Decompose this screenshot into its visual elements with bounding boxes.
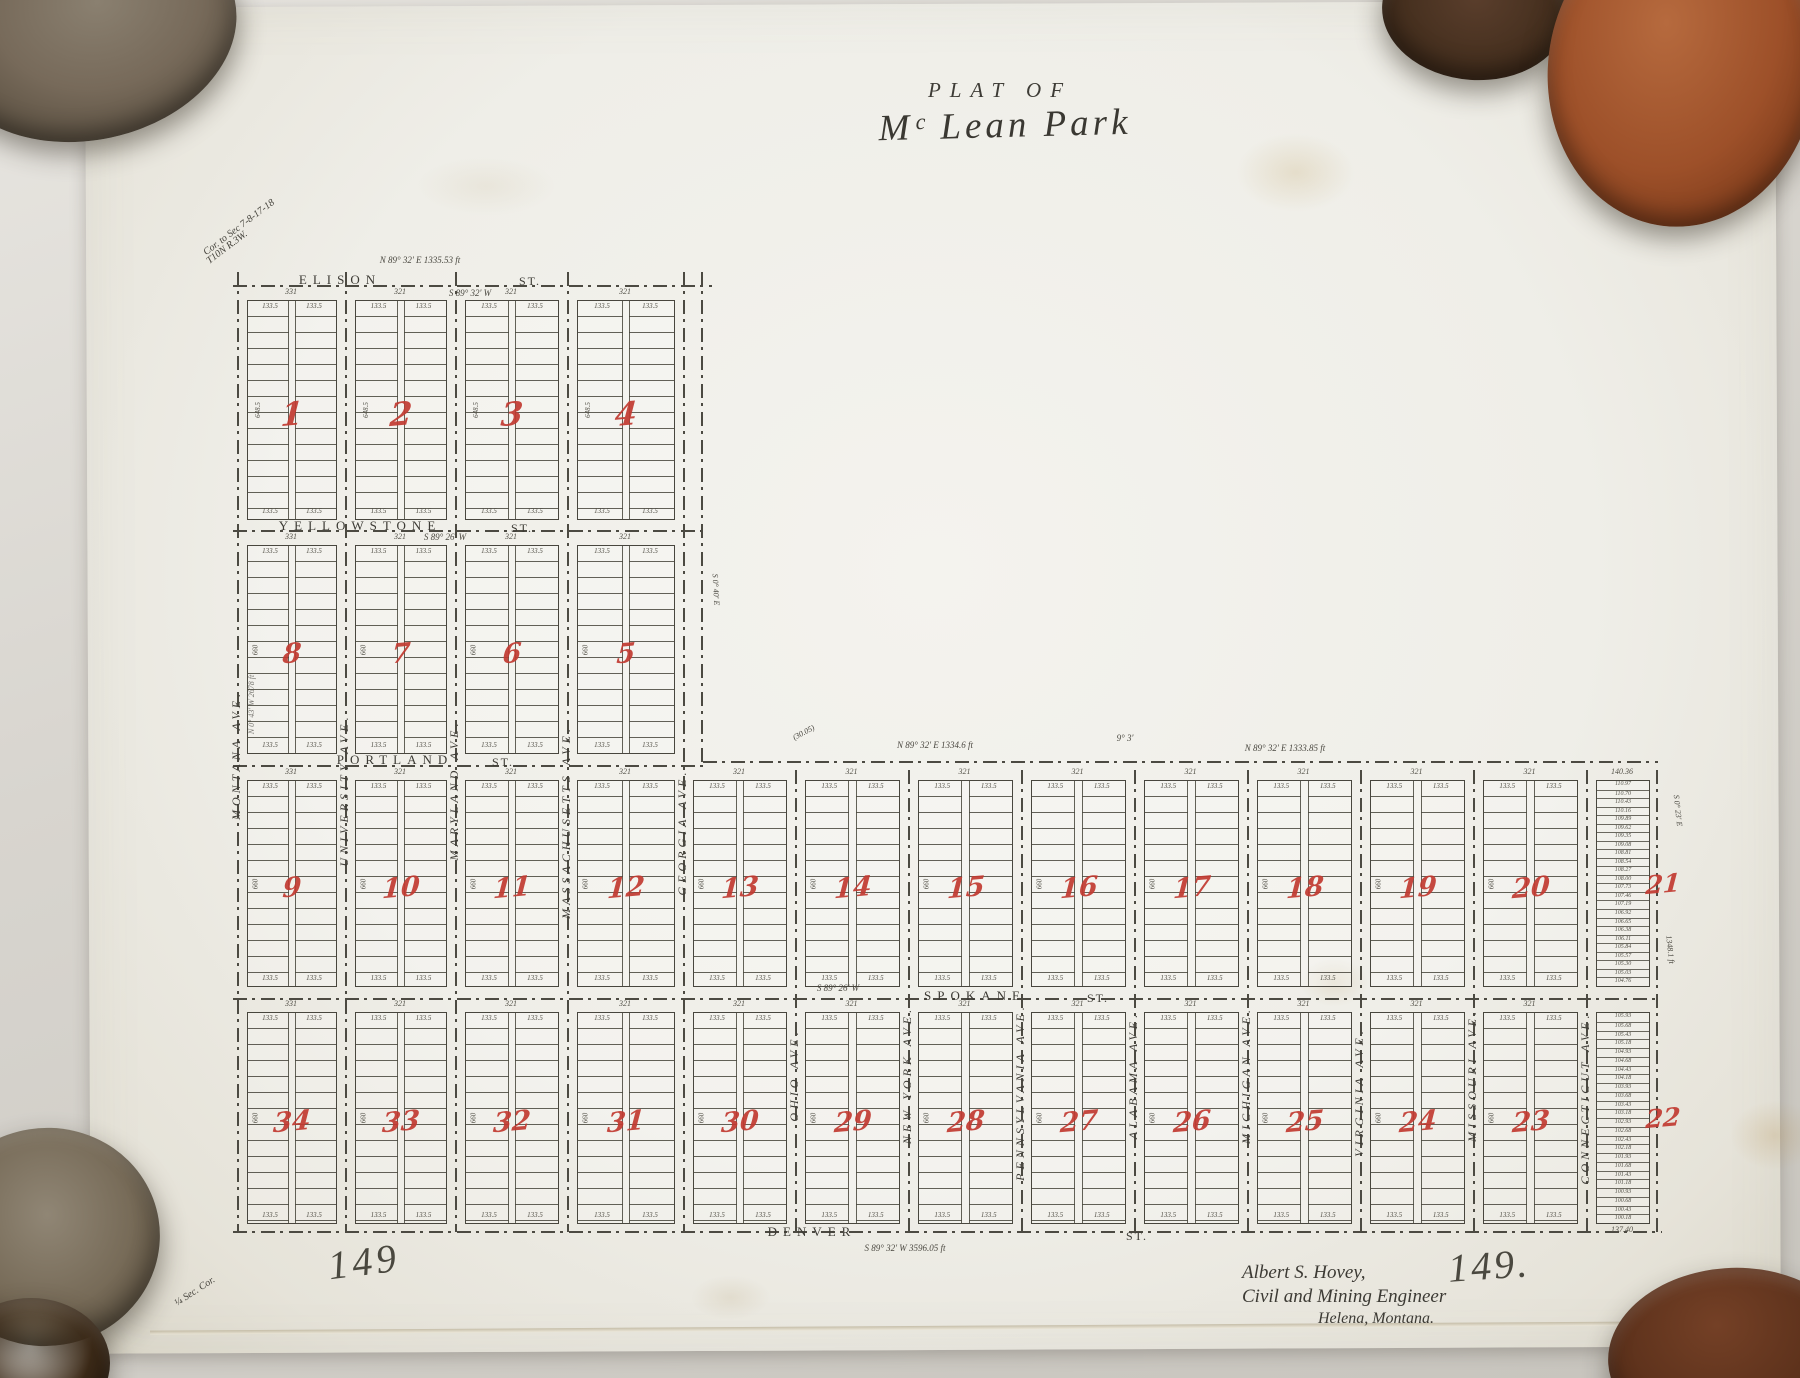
block-depth-dim: 660 — [359, 644, 367, 655]
avenue-centerline — [795, 770, 797, 1232]
block-depth-dim: 648.5 — [472, 402, 480, 418]
lot-width-dim: 133.5 — [1386, 782, 1402, 790]
strip-lot-dim: 101.43 — [1597, 1171, 1649, 1180]
block-depth-dim: 660 — [251, 1113, 259, 1124]
strip-lot-dim: 108.81 — [1597, 849, 1649, 858]
block-frontage-dim: 321 — [1524, 767, 1536, 776]
lot-width-dim: 133.5 — [527, 302, 543, 310]
block-depth-dim: 660 — [922, 1113, 930, 1124]
lot-width-dim: 133.5 — [709, 782, 725, 790]
lot-width-dim: 133.5 — [1094, 782, 1110, 790]
lot-width-dim: 133.5 — [709, 1014, 725, 1022]
plat-block: 133.5133.5133.5133.5648.54 — [577, 300, 675, 520]
block-number: 7 — [391, 637, 412, 670]
lot-width-dim: 133.5 — [416, 1014, 432, 1022]
lot-width-dim: 133.5 — [262, 782, 278, 790]
lot-width-dim: 133.5 — [642, 974, 658, 982]
lot-width-dim: 133.5 — [1320, 1211, 1336, 1219]
plat-block: 133.5133.5133.5133.566029 — [805, 1012, 900, 1224]
strip-lot-dim: 107.46 — [1597, 892, 1649, 901]
lot-width-dim: 133.5 — [306, 741, 322, 749]
block-frontage-dim: 321 — [505, 287, 517, 296]
avenue-label-alabama: ALABAMA AVE. — [1126, 1011, 1141, 1139]
lot-width-dim: 133.5 — [642, 302, 658, 310]
plat-east-boundary-line — [1656, 770, 1658, 1232]
east-boundary-bearing: S 0° 23' E — [1672, 794, 1684, 827]
lot-width-dim: 133.5 — [709, 974, 725, 982]
lot-width-dim: 133.5 — [262, 1014, 278, 1022]
street-label-portland: PORTLAND — [337, 752, 454, 768]
lot-width-dim: 133.5 — [481, 547, 497, 555]
lot-width-dim: 133.5 — [1320, 782, 1336, 790]
lot-width-dim: 133.5 — [527, 782, 543, 790]
lot-width-dim: 133.5 — [1207, 1211, 1223, 1219]
lot-width-dim: 133.5 — [262, 302, 278, 310]
avenue-label-michigan: MICHIGAN AVE. — [1239, 1006, 1254, 1144]
strip-lot-dim: 108.27 — [1597, 866, 1649, 875]
avenue-label-missouri: MISSOURI AVE. — [1465, 1008, 1480, 1142]
street-bearing-above-elison: N 89° 32' E 1335.53 ft — [380, 255, 461, 265]
lot-width-dim: 133.5 — [642, 782, 658, 790]
lot-width-dim: 133.5 — [262, 547, 278, 555]
plat-block: 133.5133.5133.5133.566025 — [1257, 1012, 1352, 1224]
block-depth-dim: 660 — [1035, 878, 1043, 889]
lot-width-dim: 133.5 — [934, 1211, 950, 1219]
avenue-centerline — [1134, 770, 1136, 1232]
avenue-label-maryland: MARYLAND AVE. — [447, 720, 462, 861]
plat-block: 133.5133.5133.5133.56605 — [577, 545, 675, 754]
strip-lot-dim: 109.08 — [1597, 841, 1649, 850]
lot-width-dim: 133.5 — [1320, 974, 1336, 982]
block-number: 9 — [282, 871, 303, 904]
lot-width-dim: 133.5 — [306, 302, 322, 310]
block-frontage-dim: 321 — [733, 999, 745, 1008]
lot-width-dim: 133.5 — [481, 302, 497, 310]
lot-width-dim: 133.5 — [1047, 1014, 1063, 1022]
georgia-avenue-bearing: S 0° 40' E — [711, 573, 722, 605]
strip-lot-dim: 110.43 — [1597, 798, 1649, 807]
strip-lot-dim: 110.16 — [1597, 807, 1649, 816]
strip-lot-dim: 106.38 — [1597, 926, 1649, 935]
lot-width-dim: 133.5 — [981, 974, 997, 982]
lot-width-dim: 133.5 — [934, 782, 950, 790]
block-frontage-dim: 321 — [1298, 767, 1310, 776]
lot-width-dim: 133.5 — [481, 782, 497, 790]
avenue-label-connecticut: CONNECTICUT AVE. — [1578, 1012, 1593, 1185]
lot-width-dim: 133.5 — [1499, 782, 1515, 790]
lot-width-dim: 133.5 — [755, 1014, 771, 1022]
engineer-signature-place: Helena, Montana. — [1318, 1310, 1434, 1328]
plat-block: 133.5133.5133.5133.56606 — [465, 545, 559, 754]
plat-block: 133.5133.5133.5133.56607 — [355, 545, 447, 754]
lot-width-dim: 133.5 — [1160, 782, 1176, 790]
lot-width-dim: 133.5 — [594, 974, 610, 982]
block-number: 19 — [1398, 870, 1438, 905]
plat-block: 133.5133.5133.5133.566018 — [1257, 780, 1352, 987]
lot-width-dim: 133.5 — [527, 1014, 543, 1022]
street-suffix-yellowstone: ST. — [511, 521, 533, 536]
lot-width-dim: 133.5 — [1160, 1014, 1176, 1022]
block-frontage-dim: 321 — [1072, 999, 1084, 1008]
strip-lot-dim: 104.43 — [1597, 1066, 1649, 1075]
block-depth-dim: 660 — [1487, 878, 1495, 889]
lot-width-dim: 133.5 — [1546, 974, 1562, 982]
strip-lot-dim: 101.93 — [1597, 1153, 1649, 1162]
lot-width-dim: 133.5 — [642, 741, 658, 749]
lot-width-dim: 133.5 — [527, 974, 543, 982]
block-number: 17 — [1172, 870, 1212, 905]
block-depth-dim: 660 — [1261, 878, 1269, 889]
block-depth-dim: 660 — [359, 878, 367, 889]
strip-lot-dim: 104.68 — [1597, 1057, 1649, 1066]
strip-lot-dim: 105.68 — [1597, 1022, 1649, 1031]
block-number: 16 — [1059, 870, 1099, 905]
block-number: 22 — [1645, 1102, 1682, 1134]
plat-block: 133.5133.5133.5133.566024 — [1370, 1012, 1465, 1224]
lot-width-dim: 133.5 — [1499, 1014, 1515, 1022]
lot-width-dim: 133.5 — [416, 547, 432, 555]
block-depth-dim: 660 — [1035, 1113, 1043, 1124]
block-number: 8 — [282, 637, 303, 670]
block-frontage-dim: 321 — [1185, 767, 1197, 776]
block-depth-dim: 660 — [922, 878, 930, 889]
block-number: 27 — [1059, 1105, 1099, 1140]
block-frontage-dim: 321 — [619, 287, 631, 296]
block-number: 12 — [606, 870, 646, 905]
lot-width-dim: 133.5 — [371, 547, 387, 555]
corner-note-bottom-left: ¼ Sec. Cor. — [173, 1274, 217, 1308]
lot-width-dim: 133.5 — [481, 507, 497, 515]
strip-lot-dim: 107.73 — [1597, 883, 1649, 892]
strip-lot-dim: 109.62 — [1597, 824, 1649, 833]
block-number: 11 — [492, 870, 532, 905]
strip-lot-dim: 105.30 — [1597, 960, 1649, 969]
lot-width-dim: 133.5 — [1433, 1014, 1449, 1022]
block-frontage-dim: 321 — [1411, 999, 1423, 1008]
strip-lot-dim: 109.89 — [1597, 815, 1649, 824]
block-depth-dim: 660 — [469, 878, 477, 889]
strip-lot-dim: 100.93 — [1597, 1188, 1649, 1197]
strip-lot-dim: 104.18 — [1597, 1074, 1649, 1083]
block-number: 30 — [720, 1105, 760, 1140]
lot-width-dim: 133.5 — [642, 507, 658, 515]
avenue-label-university: UNIVERSITY AVE. — [337, 713, 352, 866]
street-bearing-spokane: S 89° 26' W — [817, 983, 859, 993]
strip-lot-dim: 107.19 — [1597, 900, 1649, 909]
lot-width-dim: 133.5 — [1094, 974, 1110, 982]
lot-width-dim: 133.5 — [306, 1211, 322, 1219]
strip-lot-dim: 100.43 — [1597, 1206, 1649, 1215]
lot-width-dim: 133.5 — [594, 302, 610, 310]
lot-width-dim: 133.5 — [821, 974, 837, 982]
lot-width-dim: 133.5 — [1273, 974, 1289, 982]
street-bearing-yellowstone: S 89° 26' W — [424, 532, 466, 542]
strip-lot-dim: 108.00 — [1597, 875, 1649, 884]
block-depth-dim: 660 — [697, 1113, 705, 1124]
block-depth-dim: 648.5 — [584, 402, 592, 418]
north-boundary-bearing-1: N 89° 32' E 1334.6 ft — [897, 740, 973, 750]
block-frontage-dim: 321 — [733, 767, 745, 776]
street-suffix-portland: ST. — [492, 755, 514, 770]
strip-lot-dim: 105.03 — [1597, 969, 1649, 978]
street-suffix-denver: ST. — [1126, 1229, 1148, 1244]
avenue-label-georgia: GEORGIA AVE. — [675, 769, 690, 896]
street-label-elison: ELISON — [299, 272, 381, 288]
avenue-label-virginia: VIRGINIA AVE. — [1352, 1027, 1367, 1157]
lot-width-dim: 133.5 — [981, 1211, 997, 1219]
street-centerline — [703, 761, 1658, 763]
block-frontage-dim: 321 — [846, 767, 858, 776]
strip-lot-dim: 108.54 — [1597, 858, 1649, 867]
lot-width-dim: 133.5 — [981, 782, 997, 790]
lot-width-dim: 133.5 — [821, 782, 837, 790]
lot-width-dim: 133.5 — [1160, 1211, 1176, 1219]
lot-width-dim: 133.5 — [1094, 1014, 1110, 1022]
block-number: 26 — [1172, 1105, 1212, 1140]
lot-width-dim: 133.5 — [1047, 974, 1063, 982]
strip-lot-dim: 105.43 — [1597, 1031, 1649, 1040]
block-number: 28 — [946, 1105, 986, 1140]
block-number: 3 — [500, 394, 525, 434]
plat-block: 133.5133.5133.5133.5648.52 — [355, 300, 447, 520]
lot-width-dim: 133.5 — [1386, 1211, 1402, 1219]
lot-width-dim: 133.5 — [371, 741, 387, 749]
strip-lot-dim: 103.93 — [1597, 1083, 1649, 1092]
street-suffix-elison: ST. — [519, 274, 541, 289]
plat-block: 133.5133.5133.5133.566020 — [1483, 780, 1578, 987]
lot-width-dim: 133.5 — [371, 1014, 387, 1022]
lot-width-dim: 133.5 — [481, 741, 497, 749]
block-frontage-dim: 321 — [1411, 767, 1423, 776]
street-suffix-spokane: ST. — [1087, 991, 1109, 1006]
lot-width-dim: 133.5 — [262, 741, 278, 749]
block-number: 29 — [833, 1105, 873, 1140]
strip-lot-dim: 103.43 — [1597, 1101, 1649, 1110]
lot-width-dim: 133.5 — [709, 1211, 725, 1219]
plat-block: 133.5133.5133.5133.566027 — [1031, 1012, 1126, 1224]
plat-block: 133.5133.5133.5133.566016 — [1031, 780, 1126, 987]
lot-width-dim: 133.5 — [1499, 1211, 1515, 1219]
plat-block: 133.5133.5133.5133.566028 — [918, 1012, 1013, 1224]
block-frontage-dim: 321 — [394, 999, 406, 1008]
avenue-label-pennsylvania: PENNSYLVANIA AVE. — [1013, 1003, 1028, 1181]
lot-width-dim: 133.5 — [594, 1211, 610, 1219]
block-frontage-dim: 331 — [285, 999, 297, 1008]
street-label-denver: DENVER — [768, 1224, 857, 1240]
page-number-right: 149. — [1446, 1239, 1531, 1292]
block-number: 4 — [614, 394, 639, 434]
block-depth-dim: 660 — [469, 644, 477, 655]
lot-width-dim: 133.5 — [306, 547, 322, 555]
plat-strip-block: 105.93105.68105.43105.18104.93104.68104.… — [1596, 1012, 1650, 1224]
lot-width-dim: 133.5 — [1320, 1014, 1336, 1022]
lot-width-dim: 133.5 — [527, 741, 543, 749]
plat-block: 133.5133.5133.5133.566019 — [1370, 780, 1465, 987]
block-number: 21 — [1645, 867, 1682, 899]
strip-lot-dim: 105.57 — [1597, 952, 1649, 961]
north-boundary-angle: 9° 3' — [1117, 733, 1134, 743]
lot-width-dim: 133.5 — [481, 1211, 497, 1219]
avenue-centerline — [683, 272, 685, 1232]
block-number: 15 — [946, 870, 986, 905]
plat-block: 133.5133.5133.5133.566026 — [1144, 1012, 1239, 1224]
strip-lot-dim: 102.93 — [1597, 1118, 1649, 1127]
lot-width-dim: 133.5 — [306, 782, 322, 790]
lot-width-dim: 133.5 — [1160, 974, 1176, 982]
block-frontage-dim: 331 — [285, 287, 297, 296]
block-frontage-dim: 321 — [959, 767, 971, 776]
lot-width-dim: 133.5 — [594, 782, 610, 790]
plat-block: 133.5133.5133.5133.566034 — [247, 1012, 337, 1224]
north-boundary-bearing-2: N 89° 32' E 1333.85 ft — [1245, 743, 1326, 753]
strip-lot-dim: 106.92 — [1597, 909, 1649, 918]
lot-width-dim: 133.5 — [755, 974, 771, 982]
lot-width-dim: 133.5 — [594, 1014, 610, 1022]
plat-block: 133.5133.5133.5133.566013 — [693, 780, 787, 987]
block-depth-dim: 660 — [251, 644, 259, 655]
plat-block: 133.5133.5133.5133.566017 — [1144, 780, 1239, 987]
east-boundary-distance: 1348.1 ft — [1664, 935, 1676, 964]
lot-width-dim: 133.5 — [1273, 782, 1289, 790]
lot-width-dim: 133.5 — [868, 1014, 884, 1022]
block-frontage-dim: 321 — [505, 999, 517, 1008]
plat-block: 133.5133.5133.5133.56609 — [247, 780, 337, 987]
plat-block: 133.5133.5133.5133.56608 — [247, 545, 337, 754]
lot-width-dim: 133.5 — [416, 302, 432, 310]
strip-lot-dim: 105.18 — [1597, 1039, 1649, 1048]
lot-width-dim: 133.5 — [755, 782, 771, 790]
lot-width-dim: 133.5 — [1546, 1014, 1562, 1022]
block-number: 31 — [606, 1105, 646, 1140]
lot-width-dim: 133.5 — [416, 507, 432, 515]
lot-width-dim: 133.5 — [1433, 1211, 1449, 1219]
block-number: 2 — [389, 394, 414, 434]
engineer-signature-title: Civil and Mining Engineer — [1242, 1286, 1446, 1308]
lot-width-dim: 133.5 — [306, 1014, 322, 1022]
avenue-centerline — [1473, 770, 1475, 1232]
lot-width-dim: 133.5 — [481, 1014, 497, 1022]
avenue-label-massachusetts: MASSACHUSETTS AVE. — [559, 725, 574, 919]
block-depth-dim: 660 — [251, 878, 259, 889]
block-frontage-dim: 321 — [1524, 999, 1536, 1008]
lot-width-dim: 133.5 — [527, 1211, 543, 1219]
block-number: 20 — [1511, 870, 1551, 905]
strip-lot-dim: 103.18 — [1597, 1109, 1649, 1118]
lot-width-dim: 133.5 — [262, 507, 278, 515]
block-depth-dim: 660 — [1487, 1113, 1495, 1124]
block-frontage-dim: 321 — [1185, 999, 1197, 1008]
block-frontage-dim: 331 — [285, 767, 297, 776]
strip-lot-dim: 109.35 — [1597, 832, 1649, 841]
avenue-centerline — [908, 770, 910, 1232]
strip-lot-dim: 110.70 — [1597, 790, 1649, 799]
lot-width-dim: 133.5 — [416, 1211, 432, 1219]
lot-width-dim: 133.5 — [416, 741, 432, 749]
lot-width-dim: 133.5 — [594, 547, 610, 555]
block-number: 23 — [1511, 1105, 1551, 1140]
lot-width-dim: 133.5 — [527, 507, 543, 515]
plat-strip-block: 110.97110.70110.43110.16109.89109.62109.… — [1596, 780, 1650, 987]
block-number: 32 — [492, 1105, 532, 1140]
lot-width-dim: 133.5 — [594, 741, 610, 749]
strip-lot-dim: 102.68 — [1597, 1127, 1649, 1136]
lot-width-dim: 133.5 — [868, 782, 884, 790]
strip-bottom-dim: 137.40 — [1611, 1225, 1633, 1234]
lot-width-dim: 133.5 — [934, 974, 950, 982]
lot-width-dim: 133.5 — [755, 1211, 771, 1219]
lot-width-dim: 133.5 — [642, 1014, 658, 1022]
block-number: 25 — [1285, 1105, 1325, 1140]
lot-width-dim: 133.5 — [642, 1211, 658, 1219]
block-number: 33 — [381, 1105, 421, 1140]
block-number: 24 — [1398, 1105, 1438, 1140]
lot-width-dim: 133.5 — [821, 1211, 837, 1219]
photo-scene: PLAT OF Mᶜ Lean Park Cor. to Sec 7-8-17-… — [0, 0, 1800, 1378]
block-depth-dim: 648.5 — [362, 402, 370, 418]
block-number: 34 — [272, 1105, 312, 1140]
avenue-centerline — [1360, 770, 1362, 1232]
plat-block: 133.5133.5133.5133.566012 — [577, 780, 675, 987]
lot-width-dim: 133.5 — [934, 1014, 950, 1022]
lot-width-dim: 133.5 — [262, 1211, 278, 1219]
lot-width-dim: 133.5 — [821, 1014, 837, 1022]
block-depth-dim: 660 — [809, 1113, 817, 1124]
lot-width-dim: 133.5 — [306, 507, 322, 515]
strip-lot-dim: 104.76 — [1597, 977, 1649, 986]
strip-lot-dim: 106.11 — [1597, 935, 1649, 944]
block-depth-dim: 660 — [697, 878, 705, 889]
strip-lot-dim: 110.97 — [1597, 781, 1649, 790]
avenue-centerline — [1247, 770, 1249, 1232]
block-number: 14 — [833, 870, 873, 905]
strip-lot-dim: 102.18 — [1597, 1144, 1649, 1153]
avenue-label-montana: MONTANA AVE. — [229, 690, 244, 820]
page-number-left: 149 — [325, 1234, 402, 1289]
lot-width-dim: 133.5 — [306, 974, 322, 982]
portland-corner-note: (30.05) — [791, 723, 816, 742]
lot-width-dim: 133.5 — [527, 547, 543, 555]
plat-block: 133.5133.5133.5133.5648.51 — [247, 300, 337, 520]
strip-lot-dim: 106.65 — [1597, 918, 1649, 927]
lot-width-dim: 133.5 — [481, 974, 497, 982]
plat-block: 133.5133.5133.5133.566011 — [465, 780, 559, 987]
lot-width-dim: 133.5 — [1273, 1211, 1289, 1219]
lot-width-dim: 133.5 — [1047, 1211, 1063, 1219]
lot-width-dim: 133.5 — [1386, 974, 1402, 982]
street-label-spokane: SPOKANE — [924, 988, 1026, 1004]
block-depth-dim: 660 — [1374, 878, 1382, 889]
block-depth-dim: 660 — [1148, 1113, 1156, 1124]
map-title-line2: Mᶜ Lean Park — [878, 101, 1132, 151]
lot-width-dim: 133.5 — [1546, 782, 1562, 790]
strip-lot-dim: 105.84 — [1597, 943, 1649, 952]
lot-width-dim: 133.5 — [1047, 782, 1063, 790]
block-frontage-dim: 321 — [619, 532, 631, 541]
engineer-signature-name: Albert S. Hovey, — [1242, 1262, 1365, 1284]
lot-width-dim: 133.5 — [1207, 974, 1223, 982]
lot-width-dim: 133.5 — [1273, 1014, 1289, 1022]
block-depth-dim: 660 — [581, 644, 589, 655]
strip-lot-dim: 100.68 — [1597, 1197, 1649, 1206]
lot-width-dim: 133.5 — [642, 547, 658, 555]
avenue-label-ohio: OHIO AVE. — [787, 1028, 802, 1121]
plat-block: 133.5133.5133.5133.566033 — [355, 1012, 447, 1224]
avenue-label-new: NEW YORK AVE. — [900, 1006, 915, 1144]
strip-lot-dim: 105.93 — [1597, 1013, 1649, 1022]
block-depth-dim: 660 — [1261, 1113, 1269, 1124]
strip-lot-dim: 101.68 — [1597, 1162, 1649, 1171]
lot-width-dim: 133.5 — [371, 302, 387, 310]
